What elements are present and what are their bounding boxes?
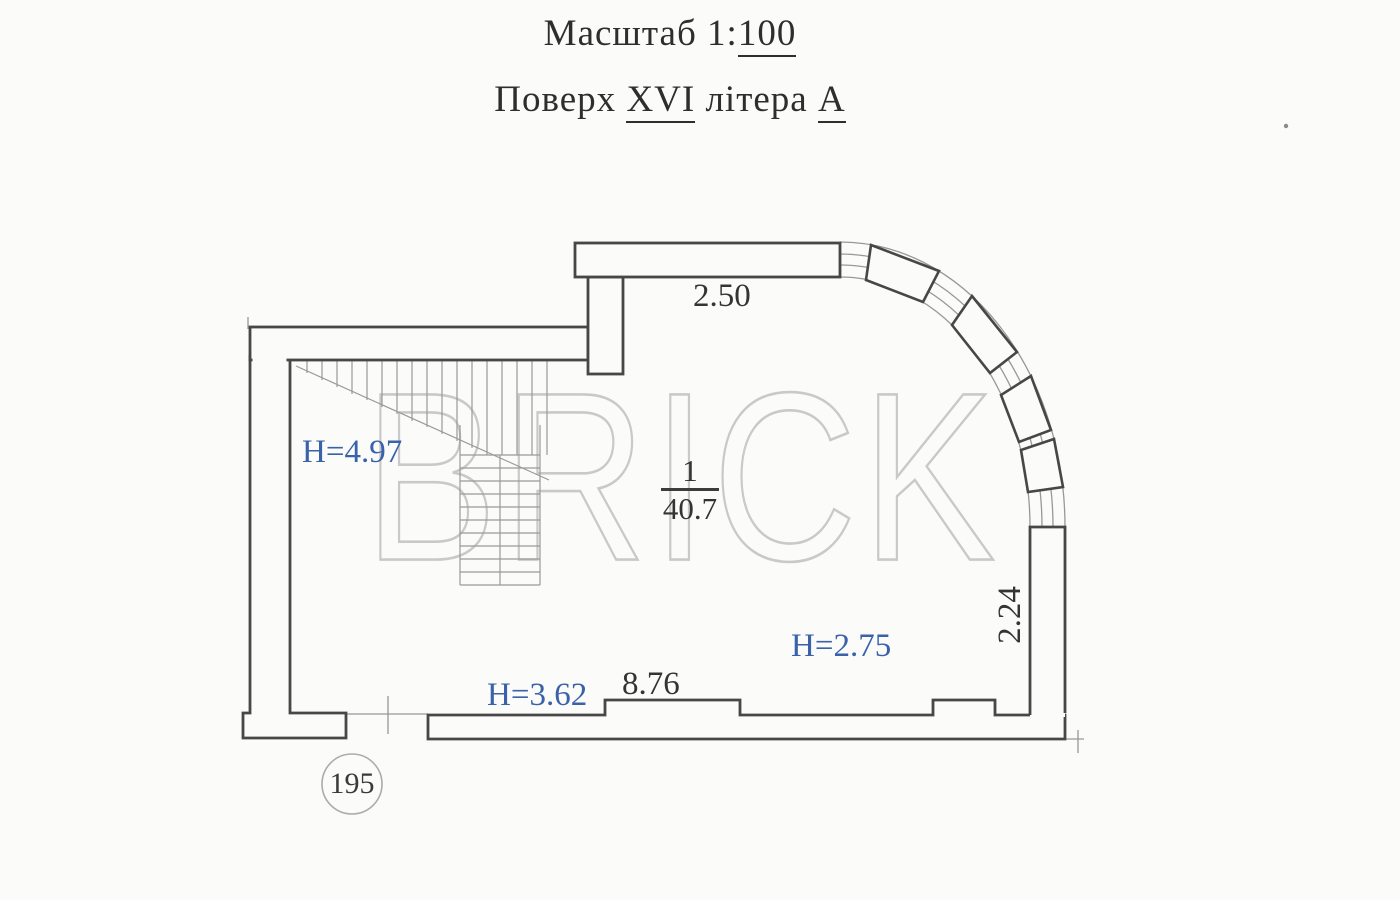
room-area: 40.7 [650, 493, 730, 524]
scale-value: 100 [738, 13, 797, 57]
dim-top-width: 2.50 [693, 278, 751, 315]
floor-label: Поверх [494, 79, 616, 120]
height-left: H=3.62 [487, 677, 587, 714]
height-stairs: H=4.97 [302, 434, 402, 471]
scale-value-group: 1:100 [707, 13, 796, 57]
floor-title: Поверх XVI літера А [350, 78, 990, 121]
letter-label: літера [705, 79, 807, 120]
room-number-area: 1 40.7 [650, 455, 730, 524]
scale-title: Масштаб 1:100 [350, 12, 990, 55]
scale-label: Масштаб [544, 13, 697, 54]
height-right: H=2.75 [791, 628, 891, 665]
floor-value: XVI [626, 79, 695, 123]
floor-plan-page: BRICK [0, 0, 1400, 900]
letter-value: А [818, 79, 846, 123]
dim-right-height: 2.24 [992, 560, 1028, 670]
axis-mark-label: 195 [322, 767, 382, 803]
dim-bottom-width: 8.76 [622, 666, 680, 703]
plan-labels: Масштаб 1:100 Поверх XVI літера А 2.50 8… [0, 0, 1400, 900]
room-number: 1 [650, 455, 730, 486]
